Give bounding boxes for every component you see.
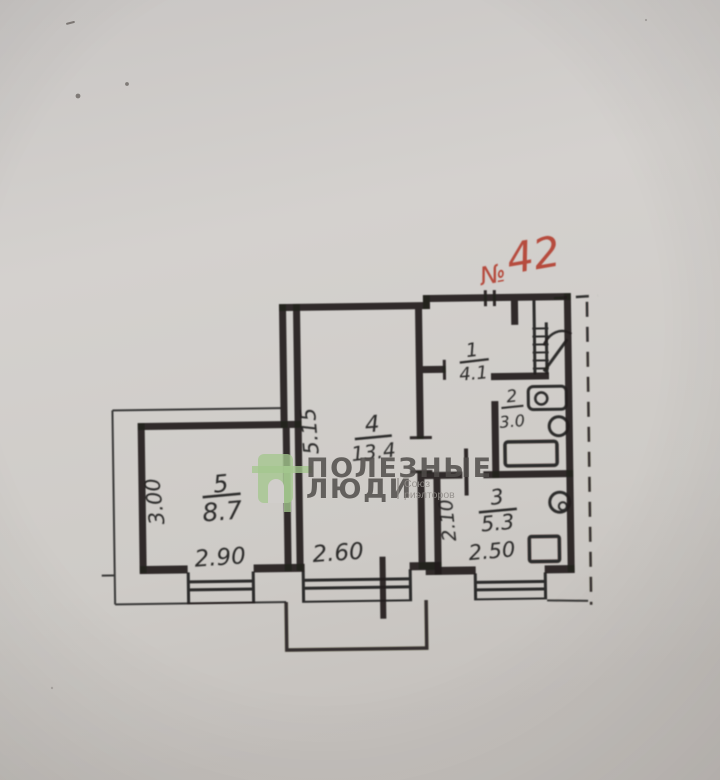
- floor-plan-svg: 5 8.7 4 13.4 1 4.1 2 3.0 3 5.3 2.90 3.00…: [0, 0, 720, 780]
- scanned-floor-plan-photo: 5 8.7 4 13.4 1 4.1 2 3.0 3 5.3 2.90 3.00…: [0, 0, 720, 780]
- photo-vignette: [0, 0, 720, 780]
